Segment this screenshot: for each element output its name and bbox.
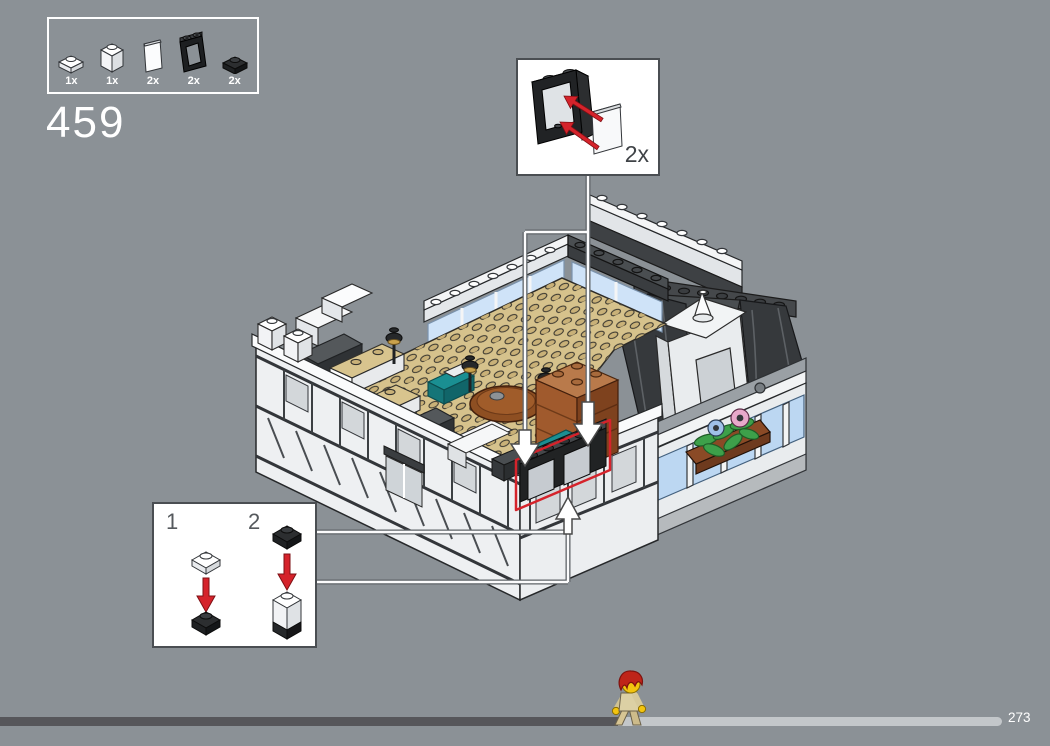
- part-qty: 2x: [188, 75, 200, 87]
- callout-substeps: 1 2: [152, 502, 317, 648]
- part-slot: 2x: [174, 28, 214, 87]
- progress-fill: [0, 717, 618, 726]
- part-slot: 2x: [215, 28, 255, 87]
- window-frame-black-icon: [174, 28, 214, 74]
- part-slot: 2x: [133, 28, 173, 87]
- part-qty: 1x: [65, 75, 77, 87]
- step-number: 459: [46, 98, 125, 148]
- callout-quantity: 2x: [625, 141, 649, 168]
- part-slot: 1x: [92, 28, 132, 87]
- red-arrow-icon: [278, 554, 296, 590]
- panel-glass-white-icon: [133, 28, 173, 74]
- instruction-page: 1x 1x 2x: [0, 0, 1050, 746]
- substep-1-label: 1: [166, 509, 178, 535]
- brick-1x1-white-icon: [92, 28, 132, 74]
- red-arrow-icon: [197, 578, 215, 612]
- parts-panel: 1x 1x 2x: [47, 17, 259, 94]
- progress-minifig[interactable]: [604, 668, 654, 726]
- plate-1x1-white-icon: [51, 28, 91, 74]
- substep-2-label: 2: [248, 509, 260, 535]
- minifig-icon: [604, 668, 654, 726]
- progress-track[interactable]: [0, 717, 1002, 726]
- callout-window-assembly: 2x: [516, 58, 660, 176]
- part-qty: 1x: [106, 75, 118, 87]
- part-slot: 1x: [51, 28, 91, 87]
- progress-label: 273: [1008, 710, 1031, 725]
- plate-1x1-black-icon: [215, 28, 255, 74]
- part-qty: 2x: [228, 75, 240, 87]
- part-qty: 2x: [147, 75, 159, 87]
